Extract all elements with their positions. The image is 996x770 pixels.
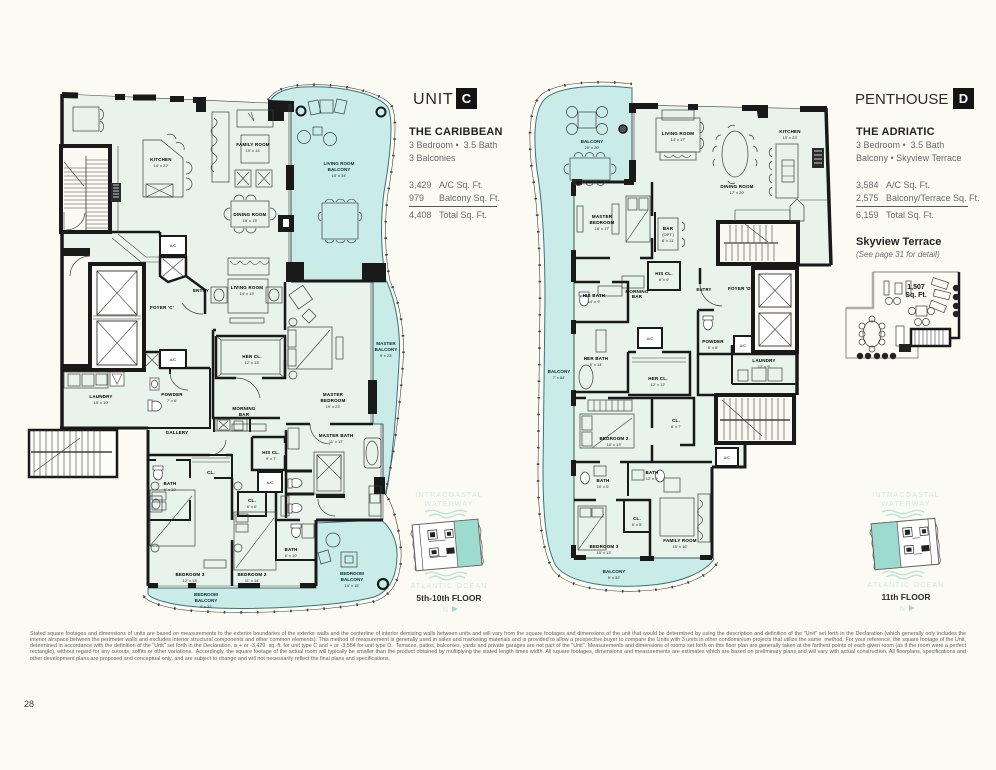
svg-text:BATH: BATH — [164, 481, 177, 486]
svg-text:9' x 14': 9' x 14' — [590, 362, 603, 367]
svg-text:WATERWAY: WATERWAY — [424, 501, 473, 508]
svg-text:BATH: BATH — [285, 547, 298, 552]
svg-text:15' x 13': 15' x 13' — [597, 550, 612, 555]
svg-text:CL.: CL. — [248, 498, 256, 503]
svg-text:12' x 12': 12' x 12' — [651, 382, 666, 387]
svg-text:MASTER BATH: MASTER BATH — [319, 433, 354, 438]
svg-text:N: N — [443, 607, 449, 614]
svg-text:CL.: CL. — [672, 418, 680, 423]
svg-text:8' x 11': 8' x 11' — [662, 238, 674, 243]
svg-text:14' x 13': 14' x 13' — [240, 291, 255, 296]
svg-text:19' x 13': 19' x 13' — [243, 218, 258, 223]
svg-text:POWDER: POWDER — [161, 392, 183, 397]
svg-text:6' x 10': 6' x 10' — [164, 487, 177, 492]
svg-text:FAMILY ROOM: FAMILY ROOM — [236, 142, 270, 147]
svg-text:10' x 6': 10' x 6' — [597, 484, 610, 489]
svg-text:LIVING ROOM: LIVING ROOM — [662, 131, 695, 136]
svg-text:8' x 9': 8' x 9' — [659, 277, 669, 282]
svg-text:ENTRY: ENTRY — [696, 287, 711, 292]
svg-text:14' x 22': 14' x 22' — [154, 163, 169, 168]
svg-text:HER CL.: HER CL. — [242, 354, 261, 359]
svg-text:ATLANTIC OCEAN: ATLANTIC OCEAN — [868, 582, 945, 589]
svg-text:CL.: CL. — [207, 470, 215, 475]
svg-text:BALCONY: BALCONY — [375, 347, 398, 352]
svg-text:MASTER: MASTER — [323, 392, 344, 397]
svg-text:6' x 10': 6' x 10' — [285, 553, 298, 558]
svg-text:BEDROOM 2: BEDROOM 2 — [237, 572, 266, 577]
svg-text:FOYER 'C': FOYER 'C' — [150, 305, 174, 310]
svg-text:BEDROOM: BEDROOM — [340, 571, 364, 576]
svg-text:BATH: BATH — [646, 470, 659, 475]
svg-text:ATLANTIC OCEAN: ATLANTIC OCEAN — [411, 583, 488, 590]
svg-text:1,507: 1,507 — [907, 284, 925, 291]
svg-text:A/C: A/C — [170, 243, 177, 248]
svg-text:N: N — [900, 606, 906, 613]
svg-text:BEDROOM 3: BEDROOM 3 — [589, 544, 618, 549]
svg-text:HER BATH: HER BATH — [584, 356, 609, 361]
svg-text:HER CL.: HER CL. — [648, 376, 667, 381]
svg-text:9' x 7': 9' x 7' — [266, 456, 276, 461]
svg-text:6' x 5': 6' x 5' — [632, 522, 642, 527]
svg-text:KITCHEN: KITCHEN — [150, 157, 171, 162]
svg-text:POWDER: POWDER — [702, 339, 724, 344]
svg-text:15' x 34': 15' x 34' — [332, 173, 347, 178]
svg-text:HIS CL.: HIS CL. — [655, 271, 672, 276]
svg-text:LAUNDRY: LAUNDRY — [752, 358, 775, 363]
svg-text:INTRACOASTAL: INTRACOASTAL — [872, 492, 940, 499]
svg-text:BALCONY: BALCONY — [328, 167, 351, 172]
svg-text:9' x 23': 9' x 23' — [380, 353, 393, 358]
svg-text:BALCONY: BALCONY — [581, 139, 604, 144]
svg-text:HIS CL.: HIS CL. — [262, 450, 279, 455]
svg-text:BALCONY: BALCONY — [195, 598, 218, 603]
svg-text:KITCHEN: KITCHEN — [779, 129, 800, 134]
svg-text:7' x 84': 7' x 84' — [553, 375, 566, 380]
svg-text:BAR: BAR — [663, 226, 674, 231]
svg-text:16' x 13': 16' x 13' — [607, 442, 622, 447]
svg-text:14' x 9': 14' x 9' — [588, 299, 601, 304]
svg-text:6' x 6': 6' x 6' — [247, 504, 257, 509]
svg-text:BEDROOM: BEDROOM — [321, 398, 346, 403]
svg-text:BEDROOM 3: BEDROOM 3 — [175, 572, 204, 577]
svg-text:CL.: CL. — [633, 516, 641, 521]
svg-text:A/C: A/C — [724, 455, 731, 460]
svg-text:4' x 31': 4' x 31' — [200, 604, 213, 609]
svg-text:BAR: BAR — [632, 294, 643, 299]
svg-text:FAMILY ROOM: FAMILY ROOM — [663, 538, 697, 543]
svg-text:9' x 32': 9' x 32' — [608, 575, 621, 580]
svg-text:12' x 13': 12' x 13' — [245, 360, 260, 365]
svg-text:LIVING ROOM: LIVING ROOM — [324, 161, 355, 166]
svg-text:BALCONY: BALCONY — [548, 369, 571, 374]
svg-text:A/C: A/C — [267, 480, 274, 485]
svg-text:15' x 16': 15' x 16' — [673, 544, 688, 549]
svg-text:DINING ROOM: DINING ROOM — [720, 184, 753, 189]
svg-text:INTRACOASTAL: INTRACOASTAL — [415, 492, 483, 499]
svg-text:6' x 8': 6' x 8' — [708, 345, 718, 350]
svg-text:12' x 9': 12' x 9' — [758, 364, 771, 369]
svg-text:12' x 6': 12' x 6' — [646, 476, 659, 481]
svg-text:BEDROOM: BEDROOM — [590, 220, 615, 225]
svg-text:LAUNDRY: LAUNDRY — [89, 394, 112, 399]
svg-text:19' x 14': 19' x 14' — [246, 148, 261, 153]
svg-text:GALLERY: GALLERY — [166, 430, 189, 435]
svg-text:A/C: A/C — [170, 357, 177, 362]
svg-text:BEDROOM 2: BEDROOM 2 — [599, 436, 628, 441]
svg-text:FOYER 'D': FOYER 'D' — [728, 286, 752, 291]
svg-text:A/C: A/C — [647, 336, 654, 341]
svg-text:14' x 17': 14' x 17' — [671, 137, 686, 142]
svg-text:BALCONY: BALCONY — [603, 569, 626, 574]
svg-text:DINING ROOM: DINING ROOM — [233, 212, 266, 217]
svg-text:HIS BATH: HIS BATH — [583, 293, 606, 298]
svg-text:8' x 7': 8' x 7' — [671, 424, 681, 429]
svg-text:16' x 17': 16' x 17' — [595, 226, 610, 231]
svg-text:LIVING ROOM: LIVING ROOM — [231, 285, 264, 290]
svg-text:12' x 13': 12' x 13' — [183, 578, 198, 583]
svg-text:15' x 23': 15' x 23' — [783, 135, 798, 140]
svg-text:WATERWAY: WATERWAY — [881, 501, 930, 508]
svg-text:BALCONY: BALCONY — [341, 577, 364, 582]
svg-text:MASTER: MASTER — [376, 341, 396, 346]
svg-text:14' x 15': 14' x 15' — [345, 583, 360, 588]
svg-text:15' x 10': 15' x 10' — [94, 400, 109, 405]
svg-text:20' x 20': 20' x 20' — [585, 145, 600, 150]
svg-text:Sq. Ft.: Sq. Ft. — [905, 292, 926, 299]
svg-text:17' x 20': 17' x 20' — [730, 190, 745, 195]
svg-text:ENTRY: ENTRY — [193, 288, 209, 293]
svg-text:BATH: BATH — [597, 478, 610, 483]
svg-text:(OPT.): (OPT.) — [662, 232, 674, 237]
svg-text:11' x 17': 11' x 17' — [329, 439, 344, 444]
svg-text:11th FLOOR: 11th FLOOR — [881, 592, 930, 602]
svg-text:5th-10th FLOOR: 5th-10th FLOOR — [416, 593, 481, 603]
svg-text:BAR: BAR — [239, 412, 250, 417]
svg-text:11' x 14': 11' x 14' — [245, 578, 260, 583]
svg-text:MORNING: MORNING — [232, 406, 255, 411]
svg-text:7' x 6': 7' x 6' — [167, 398, 177, 403]
svg-text:19' x 23': 19' x 23' — [326, 404, 341, 409]
svg-text:MASTER: MASTER — [592, 214, 613, 219]
svg-text:BEDROOM: BEDROOM — [194, 592, 218, 597]
svg-text:A/C: A/C — [740, 343, 747, 348]
